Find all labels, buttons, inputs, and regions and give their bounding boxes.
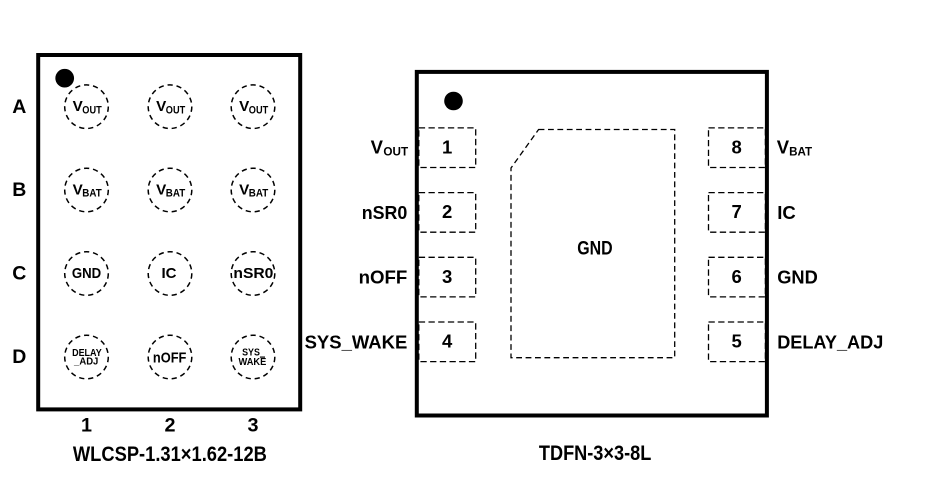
svg-text:OUT: OUT xyxy=(249,104,269,116)
svg-text:7: 7 xyxy=(732,201,742,222)
svg-text:3: 3 xyxy=(247,415,258,437)
svg-text:4: 4 xyxy=(442,331,453,352)
svg-text:TDFN-3×3-8L: TDFN-3×3-8L xyxy=(539,442,651,465)
svg-text:A: A xyxy=(12,96,26,118)
svg-text:BAT: BAT xyxy=(789,147,812,159)
svg-text:D: D xyxy=(12,346,26,368)
svg-text:nOFF: nOFF xyxy=(359,267,408,288)
svg-text:8: 8 xyxy=(732,137,742,158)
svg-text:GND: GND xyxy=(72,265,101,282)
svg-text:1: 1 xyxy=(442,137,452,158)
svg-text:V: V xyxy=(777,137,790,158)
svg-text:IC: IC xyxy=(777,202,796,223)
svg-text:1: 1 xyxy=(81,415,92,437)
svg-text:GND: GND xyxy=(577,238,612,259)
svg-text:WLCSP-1.31×1.62-12B: WLCSP-1.31×1.62-12B xyxy=(73,442,267,466)
svg-text:2: 2 xyxy=(164,415,175,437)
svg-text:6: 6 xyxy=(732,266,742,287)
svg-text:5: 5 xyxy=(732,331,742,352)
svg-text:C: C xyxy=(12,263,26,285)
svg-text:SYS_WAKE: SYS_WAKE xyxy=(305,331,408,352)
svg-text:V: V xyxy=(371,137,384,158)
svg-text:BAT: BAT xyxy=(82,188,102,200)
svg-text:OUT: OUT xyxy=(383,147,408,159)
svg-text:_ADJ: _ADJ xyxy=(73,357,98,368)
svg-text:OUT: OUT xyxy=(82,104,102,116)
svg-text:3: 3 xyxy=(442,266,452,287)
svg-text:IC: IC xyxy=(162,265,177,282)
svg-text:nOFF: nOFF xyxy=(153,349,187,366)
svg-text:2: 2 xyxy=(442,201,452,222)
svg-text:WAKE: WAKE xyxy=(239,357,267,368)
svg-text:BAT: BAT xyxy=(249,188,269,200)
svg-text:nSR0: nSR0 xyxy=(233,265,273,282)
svg-text:nSR0: nSR0 xyxy=(362,202,408,223)
svg-text:DELAY_ADJ: DELAY_ADJ xyxy=(777,331,883,352)
svg-text:BAT: BAT xyxy=(166,188,186,200)
svg-text:GND: GND xyxy=(777,267,818,288)
svg-text:OUT: OUT xyxy=(166,104,186,116)
svg-text:B: B xyxy=(12,179,26,201)
